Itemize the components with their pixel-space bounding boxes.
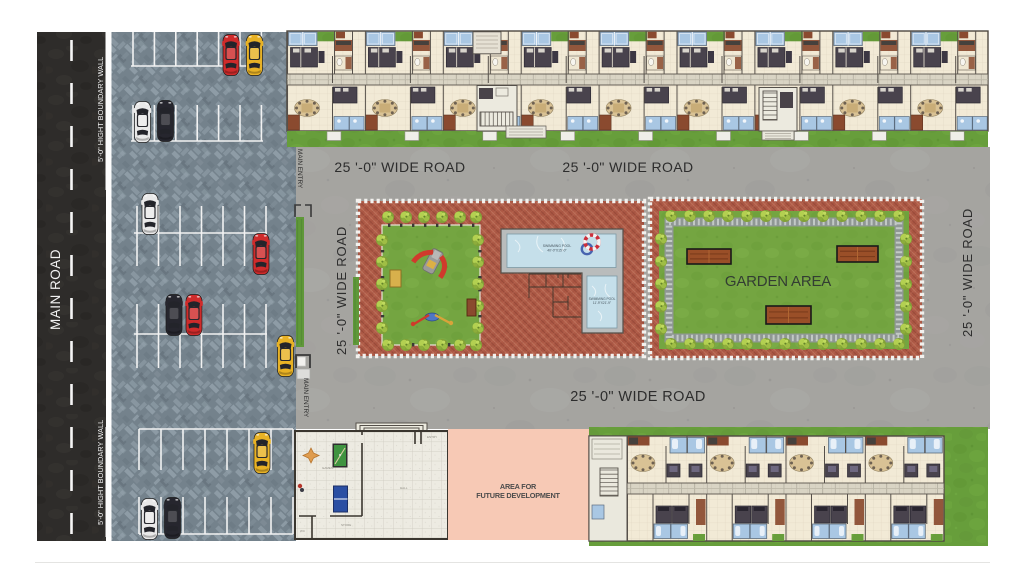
svg-text:25 '-0" WIDE ROAD: 25 '-0" WIDE ROAD	[570, 389, 706, 405]
svg-text:FUTURE DEVELOPMENT: FUTURE DEVELOPMENT	[476, 491, 560, 500]
svg-text:11'-9"X21'-9": 11'-9"X21'-9"	[593, 301, 611, 305]
svg-text:5'-0" HIGHT BOUNDARY WALL: 5'-0" HIGHT BOUNDARY WALL	[96, 57, 105, 162]
svg-text:25 '-0" WIDE ROAD: 25 '-0" WIDE ROAD	[960, 208, 975, 337]
svg-text:40'-0"X15'-0": 40'-0"X15'-0"	[547, 249, 567, 253]
svg-text:GARDEN AREA: GARDEN AREA	[725, 273, 831, 290]
svg-text:5'-0" HIGHT BOUNDARY WALL: 5'-0" HIGHT BOUNDARY WALL	[96, 420, 105, 525]
svg-text:25 '-0" WIDE ROAD: 25 '-0" WIDE ROAD	[562, 159, 693, 175]
svg-text:ENTRY: ENTRY	[427, 435, 437, 439]
svg-text:MAIN ENTRY: MAIN ENTRY	[302, 378, 309, 418]
svg-text:GAMES: GAMES	[322, 466, 333, 470]
svg-text:MAIN ENTRY: MAIN ENTRY	[296, 149, 303, 189]
svg-text:WC: WC	[300, 529, 306, 533]
svg-text:25 '-0" WIDE ROAD: 25 '-0" WIDE ROAD	[334, 159, 465, 175]
svg-text:MAIN ROAD: MAIN ROAD	[48, 249, 63, 330]
svg-text:25 '-0" WIDE ROAD: 25 '-0" WIDE ROAD	[334, 226, 349, 355]
svg-text:HALL: HALL	[400, 486, 408, 490]
svg-text:AREA FOR: AREA FOR	[500, 482, 537, 491]
svg-text:STORE: STORE	[341, 523, 351, 527]
svg-text:SWIMMING POOL: SWIMMING POOL	[543, 244, 572, 248]
